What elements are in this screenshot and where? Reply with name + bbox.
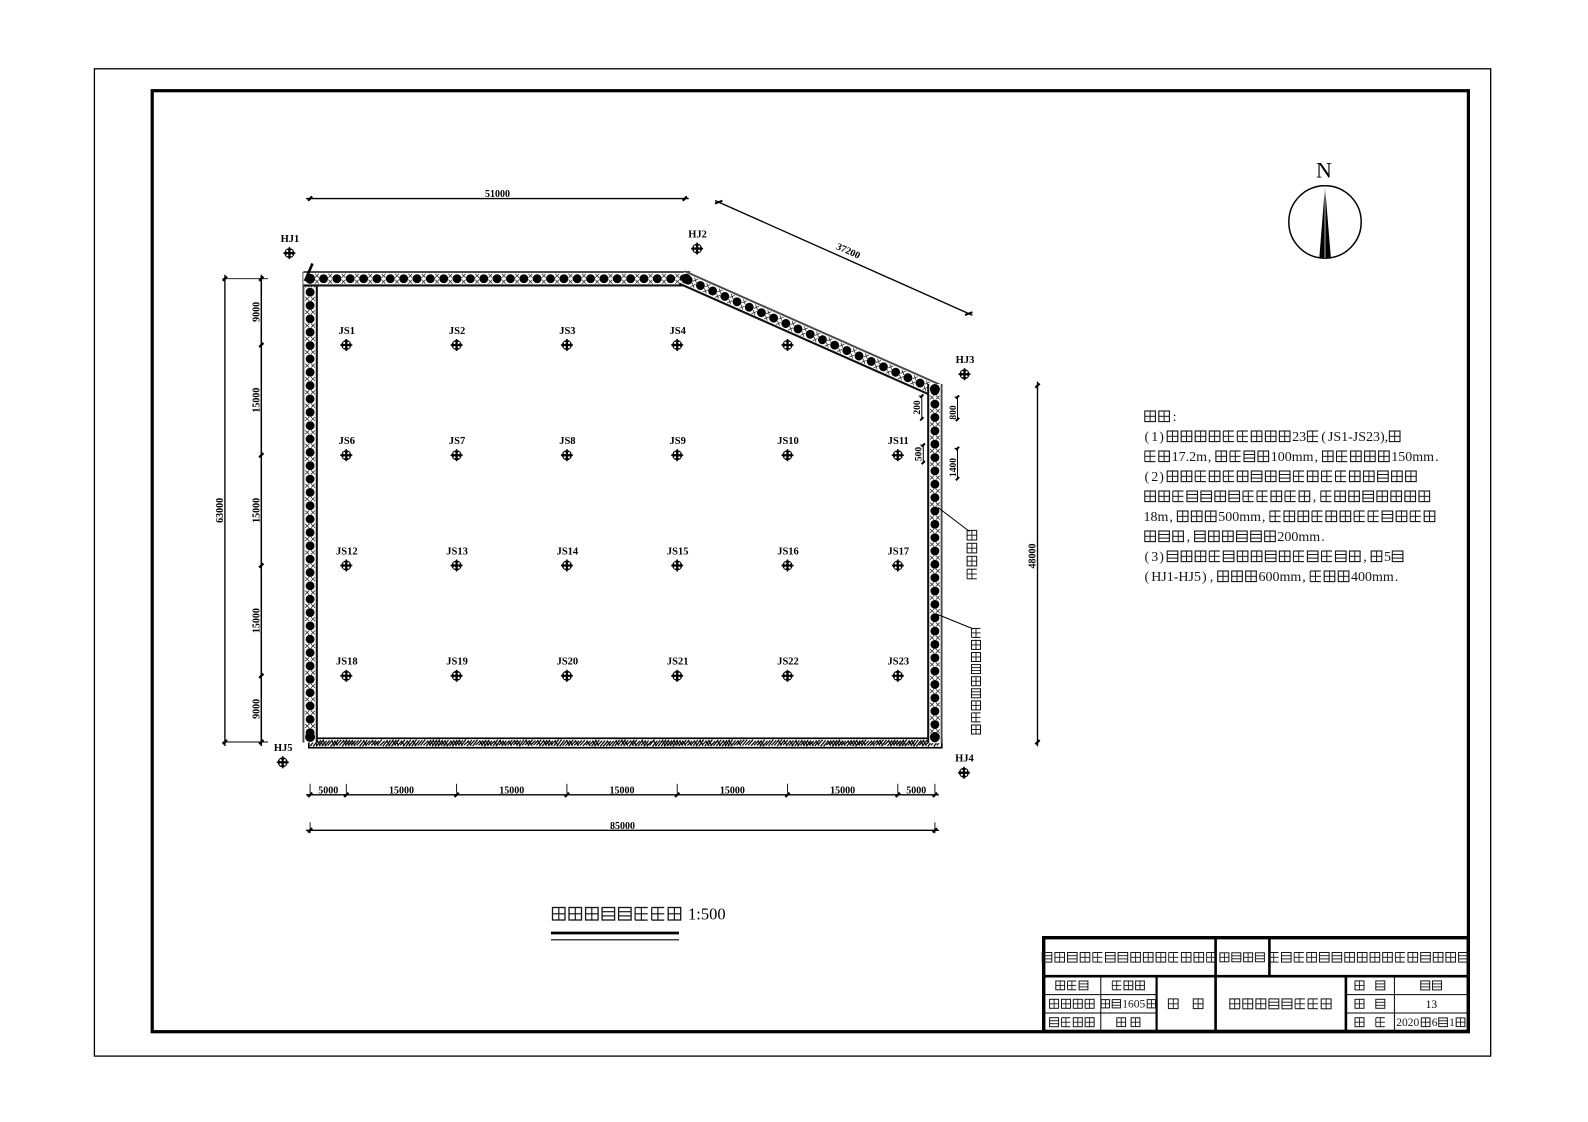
svg-text:400mm: 400mm	[1351, 570, 1394, 585]
svg-text:1:500: 1:500	[688, 904, 726, 923]
svg-text:JS12: JS12	[336, 546, 358, 557]
svg-text:.: .	[1395, 570, 1399, 585]
svg-text:(: (	[1145, 550, 1150, 565]
svg-text:JS1-JS23),: JS1-JS23),	[1328, 430, 1388, 445]
svg-text:800: 800	[949, 405, 959, 420]
svg-text:.: .	[1435, 450, 1439, 465]
svg-text:9000: 9000	[252, 302, 263, 322]
svg-text:JS4: JS4	[670, 326, 687, 337]
svg-text:1: 1	[1151, 430, 1158, 445]
svg-text:JS18: JS18	[336, 657, 358, 668]
svg-text:N: N	[1316, 158, 1332, 183]
svg-text:15000: 15000	[252, 608, 263, 633]
svg-text:5000: 5000	[906, 785, 926, 796]
svg-text:): )	[1202, 570, 1207, 585]
svg-text:HJ1: HJ1	[281, 234, 300, 245]
svg-text:51000: 51000	[485, 189, 510, 200]
svg-text:5: 5	[1384, 550, 1391, 565]
svg-text:JS8: JS8	[559, 436, 575, 447]
svg-text:JS22: JS22	[777, 657, 799, 668]
svg-text:9000: 9000	[252, 699, 263, 719]
svg-text:JS9: JS9	[670, 436, 686, 447]
svg-text:JS16: JS16	[777, 546, 799, 557]
svg-text:): )	[1159, 550, 1164, 565]
svg-text:,: ,	[1187, 530, 1191, 545]
svg-text:15000: 15000	[830, 785, 855, 796]
svg-text:1400: 1400	[949, 458, 959, 477]
svg-text:HJ3: HJ3	[956, 355, 975, 366]
svg-text:100mm: 100mm	[1271, 450, 1314, 465]
svg-text:HJ5: HJ5	[274, 743, 293, 754]
svg-text::: :	[1173, 410, 1177, 425]
svg-text:2020: 2020	[1396, 1017, 1419, 1029]
svg-text:,: ,	[1302, 570, 1306, 585]
svg-text:600mm: 600mm	[1259, 570, 1302, 585]
svg-text:,: ,	[1169, 510, 1173, 525]
svg-text:2: 2	[1151, 470, 1158, 485]
svg-text:): )	[1159, 470, 1164, 485]
svg-text:(: (	[1145, 430, 1150, 445]
svg-text:JS23: JS23	[888, 657, 910, 668]
svg-text:JS3: JS3	[559, 326, 575, 337]
svg-text:JS1: JS1	[339, 326, 355, 337]
svg-text:(: (	[1321, 430, 1326, 445]
svg-text:13: 13	[1426, 999, 1438, 1011]
svg-text:85000: 85000	[610, 821, 635, 832]
svg-text:18m: 18m	[1144, 510, 1169, 525]
svg-text:HJ4: HJ4	[955, 754, 974, 765]
svg-text:150mm: 150mm	[1391, 450, 1434, 465]
svg-text:(: (	[1145, 570, 1150, 585]
svg-text:15000: 15000	[720, 785, 745, 796]
svg-text:JS14: JS14	[557, 546, 579, 557]
svg-text:500: 500	[915, 447, 925, 462]
svg-text:,: ,	[1262, 510, 1266, 525]
svg-text:,: ,	[1208, 450, 1212, 465]
svg-text:JS21: JS21	[667, 657, 689, 668]
svg-text:JS6: JS6	[339, 436, 355, 447]
svg-text:1: 1	[1449, 1017, 1455, 1029]
svg-text:63000: 63000	[215, 498, 226, 523]
svg-text:6: 6	[1432, 1017, 1438, 1029]
svg-text:15000: 15000	[252, 498, 263, 523]
svg-text:,: ,	[1363, 550, 1367, 565]
svg-text:200mm: 200mm	[1277, 530, 1320, 545]
svg-text:HJ1-HJ5: HJ1-HJ5	[1151, 570, 1201, 585]
svg-text:15000: 15000	[499, 785, 524, 796]
svg-text:JS11: JS11	[888, 436, 909, 447]
svg-text:JS2: JS2	[449, 326, 465, 337]
svg-text:15000: 15000	[252, 388, 263, 413]
svg-text:500mm: 500mm	[1218, 510, 1261, 525]
svg-text:,: ,	[1313, 490, 1317, 505]
svg-text:15000: 15000	[610, 785, 635, 796]
svg-text:17.2m: 17.2m	[1172, 450, 1208, 465]
svg-text:): )	[1159, 430, 1164, 445]
svg-text:5000: 5000	[318, 785, 338, 796]
svg-text:JS13: JS13	[446, 546, 468, 557]
svg-text:JS19: JS19	[446, 657, 468, 668]
svg-text:23: 23	[1292, 430, 1306, 445]
svg-text:JS20: JS20	[557, 657, 579, 668]
svg-text:(: (	[1145, 470, 1150, 485]
svg-text:JS17: JS17	[888, 546, 910, 557]
svg-text:JS15: JS15	[667, 546, 689, 557]
svg-text:JS7: JS7	[449, 436, 465, 447]
svg-text:15000: 15000	[389, 785, 414, 796]
svg-text:1605: 1605	[1122, 999, 1145, 1011]
svg-text:3: 3	[1151, 550, 1158, 565]
svg-text:JS10: JS10	[777, 436, 799, 447]
svg-text:HJ2: HJ2	[688, 229, 707, 240]
svg-text:48000: 48000	[1028, 544, 1039, 569]
svg-text:.: .	[1321, 530, 1325, 545]
svg-text:,: ,	[1315, 450, 1319, 465]
svg-text:200: 200	[913, 400, 923, 415]
svg-text:,: ,	[1210, 570, 1214, 585]
